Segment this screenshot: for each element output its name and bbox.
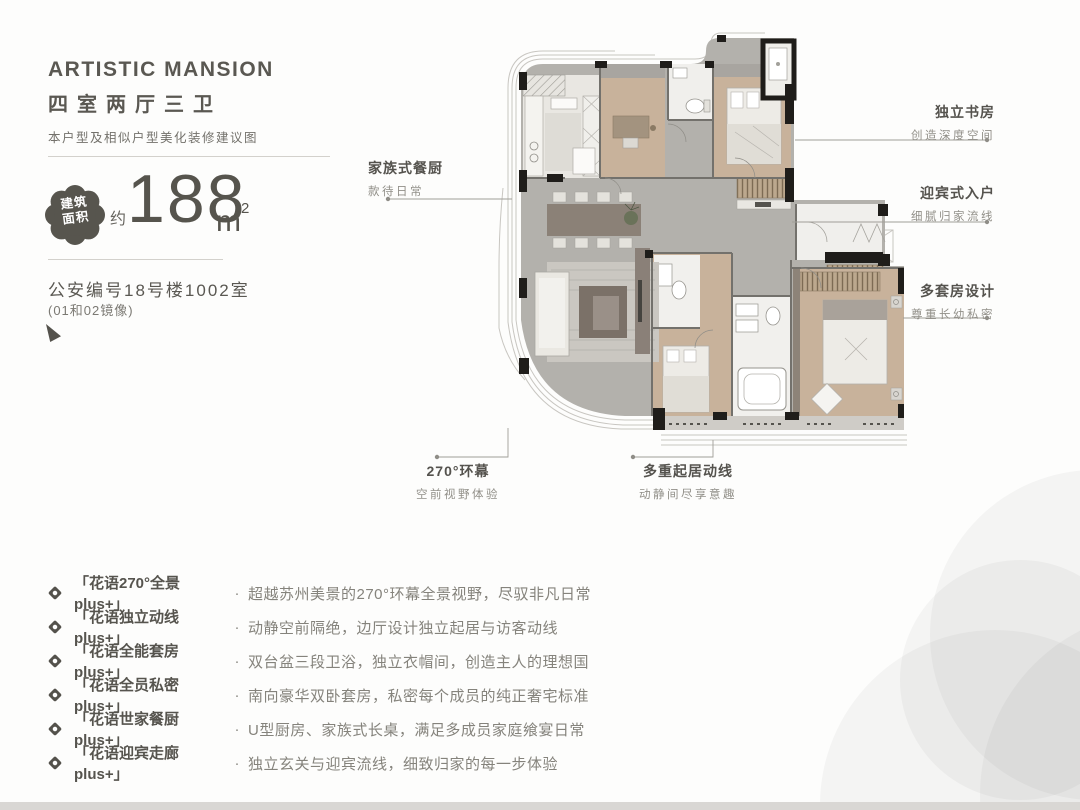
feature-row: 「花语270°全景plus+」 · 超越苏州美景的270°环幕全景视野，尽驭非凡…	[48, 576, 648, 610]
callout-entry: 迎宾式入户 细腻归家流线	[900, 183, 995, 224]
diamond-icon	[48, 688, 62, 702]
callout-living: 多重起居动线 动静间尽享意趣	[618, 461, 758, 502]
diamond-icon	[48, 586, 62, 600]
bottom-border-strip	[0, 802, 1080, 810]
feature-row: 「花语独立动线plus+」 · 动静空前隔绝，边厅设计独立起居与访客动线	[48, 610, 648, 644]
callout-kitchen: 家族式餐厨 款待日常	[368, 158, 458, 199]
callout-study: 独立书房 创造深度空间	[900, 102, 995, 143]
feature-list: 「花语270°全景plus+」 · 超越苏州美景的270°环幕全景视野，尽驭非凡…	[48, 576, 648, 780]
poster-canvas: ARTISTIC MANSION 四室两厅三卫 本户型及相似户型美化装修建议图 …	[0, 0, 1080, 810]
feature-row: 「花语全能套房 plus+」 · 双台盆三段卫浴，独立衣帽间，创造主人的理想国	[48, 644, 648, 678]
diamond-icon	[48, 620, 62, 634]
feature-row: 「花语全员私密plus+」 · 南向豪华双卧套房，私密每个成员的纯正奢宅标准	[48, 678, 648, 712]
feature-row: 「花语世家餐厨plus+」 · U型厨房、家族式长桌，满足多成员家庭飨宴日常	[48, 712, 648, 746]
callout-panorama: 270°环幕 空前视野体验	[388, 461, 528, 502]
diamond-icon	[48, 756, 62, 770]
callout-suites: 多套房设计 尊重长幼私密	[900, 281, 995, 322]
feature-row: 「花语迎宾走廊plus+」 · 独立玄关与迎宾流线，细致归家的每一步体验	[48, 746, 648, 780]
diamond-icon	[48, 654, 62, 668]
diamond-icon	[48, 722, 62, 736]
